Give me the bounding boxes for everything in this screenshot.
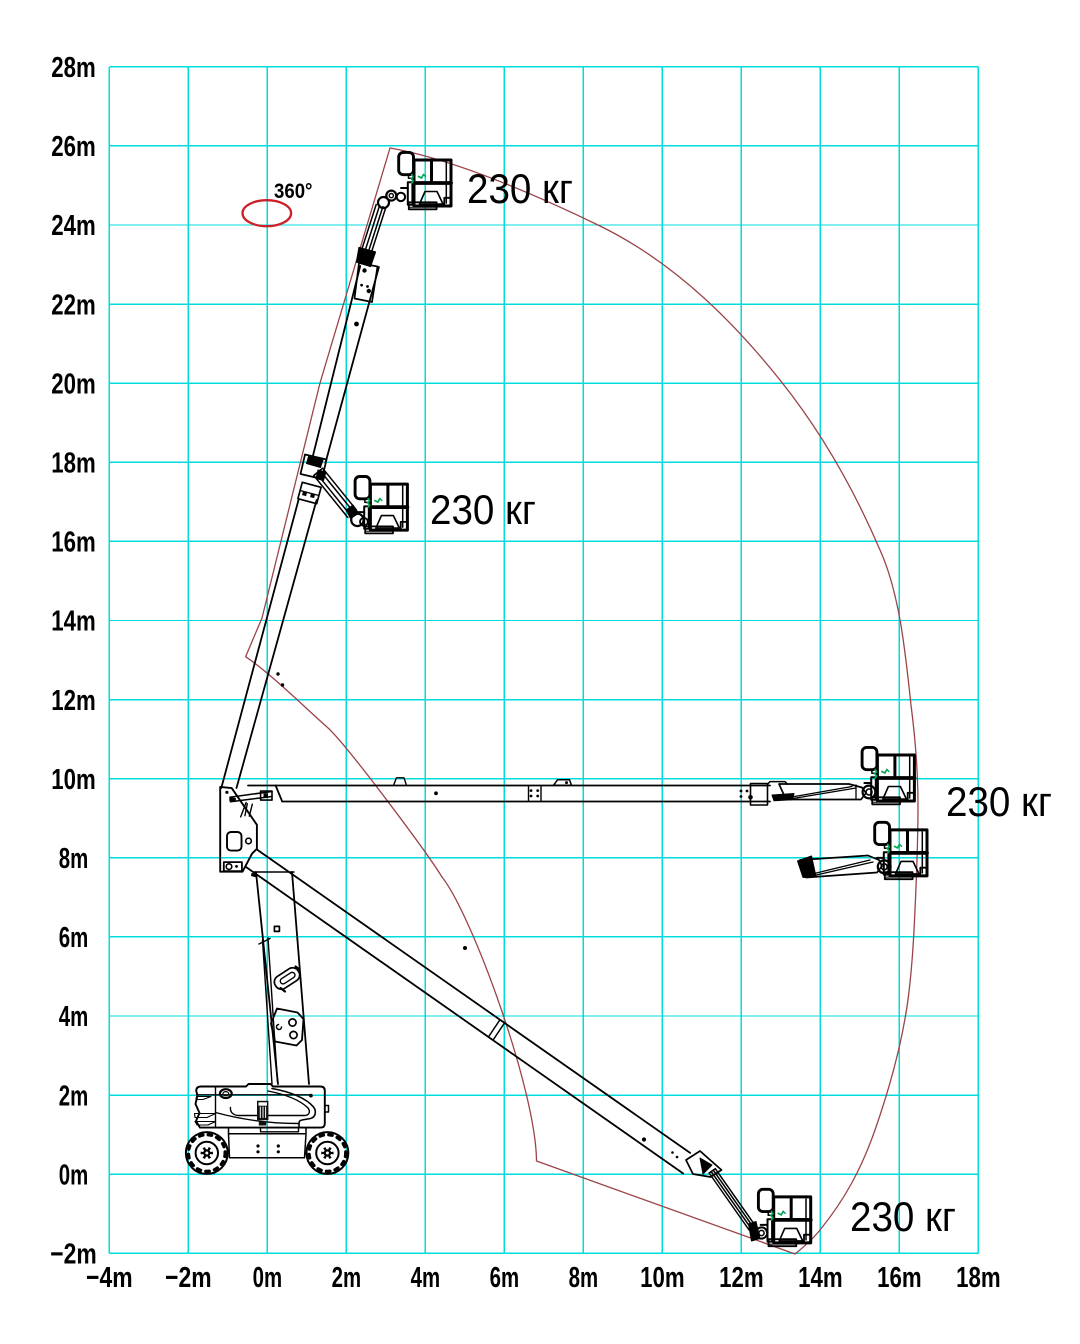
- svg-text:−4m: −4m: [86, 1262, 133, 1294]
- svg-text:26m: 26m: [51, 131, 96, 163]
- svg-text:230 кг: 230 кг: [430, 486, 536, 533]
- svg-text:2m: 2m: [332, 1262, 362, 1294]
- svg-text:18m: 18m: [956, 1262, 1001, 1294]
- svg-text:28m: 28m: [51, 52, 96, 84]
- svg-text:4m: 4m: [411, 1262, 441, 1294]
- svg-text:14m: 14m: [51, 606, 96, 638]
- svg-text:0m: 0m: [59, 1159, 89, 1191]
- svg-text:24m: 24m: [51, 210, 96, 242]
- svg-text:10m: 10m: [51, 764, 96, 796]
- svg-text:16m: 16m: [51, 527, 96, 559]
- svg-text:6m: 6m: [490, 1262, 520, 1294]
- svg-text:22m: 22m: [51, 289, 96, 321]
- svg-text:20m: 20m: [51, 368, 96, 400]
- svg-text:6m: 6m: [59, 922, 89, 954]
- svg-text:2m: 2m: [59, 1080, 89, 1112]
- svg-text:230 кг: 230 кг: [467, 165, 573, 212]
- svg-text:18m: 18m: [51, 448, 96, 480]
- svg-text:10m: 10m: [640, 1262, 685, 1294]
- svg-text:230 кг: 230 кг: [850, 1193, 956, 1240]
- svg-text:230 кг: 230 кг: [946, 778, 1052, 825]
- svg-text:0m: 0m: [253, 1262, 283, 1294]
- svg-text:14m: 14m: [798, 1262, 843, 1294]
- svg-text:4m: 4m: [59, 1001, 89, 1033]
- svg-text:−2m: −2m: [165, 1262, 212, 1294]
- svg-text:360°: 360°: [274, 179, 313, 203]
- svg-text:12m: 12m: [51, 685, 96, 717]
- svg-text:12m: 12m: [719, 1262, 764, 1294]
- svg-text:8m: 8m: [59, 843, 89, 875]
- svg-text:16m: 16m: [877, 1262, 922, 1294]
- svg-text:8m: 8m: [569, 1262, 599, 1294]
